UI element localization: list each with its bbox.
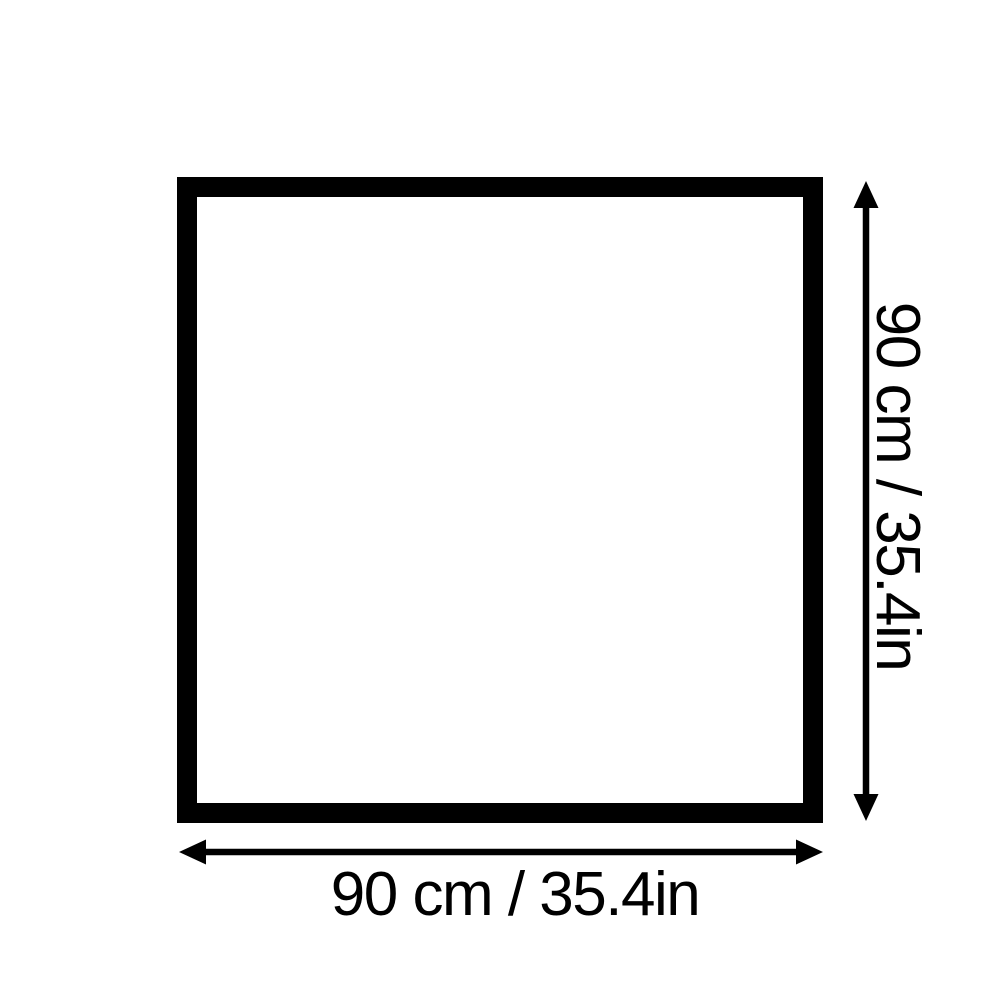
width-dimension-label: 90 cm / 35.4in [331,862,699,928]
height-dimension-label: 90 cm / 35.4in [864,302,930,670]
product-outline-square [177,177,823,823]
dimension-diagram: 90 cm / 35.4in 90 cm / 35.4in [0,0,1000,1000]
